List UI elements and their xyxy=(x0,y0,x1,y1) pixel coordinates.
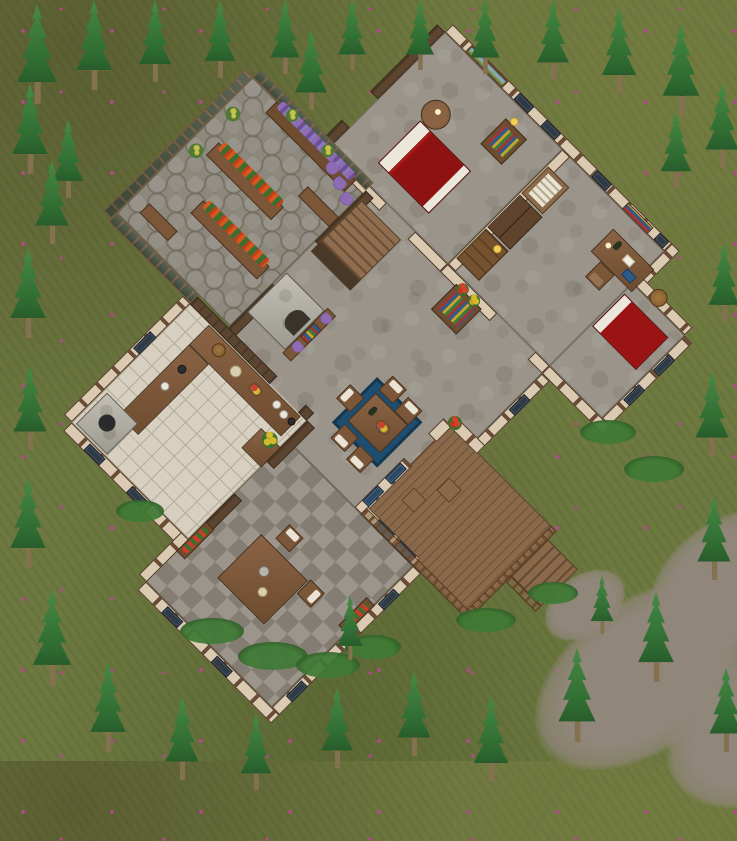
game-viewport xyxy=(0,0,737,761)
